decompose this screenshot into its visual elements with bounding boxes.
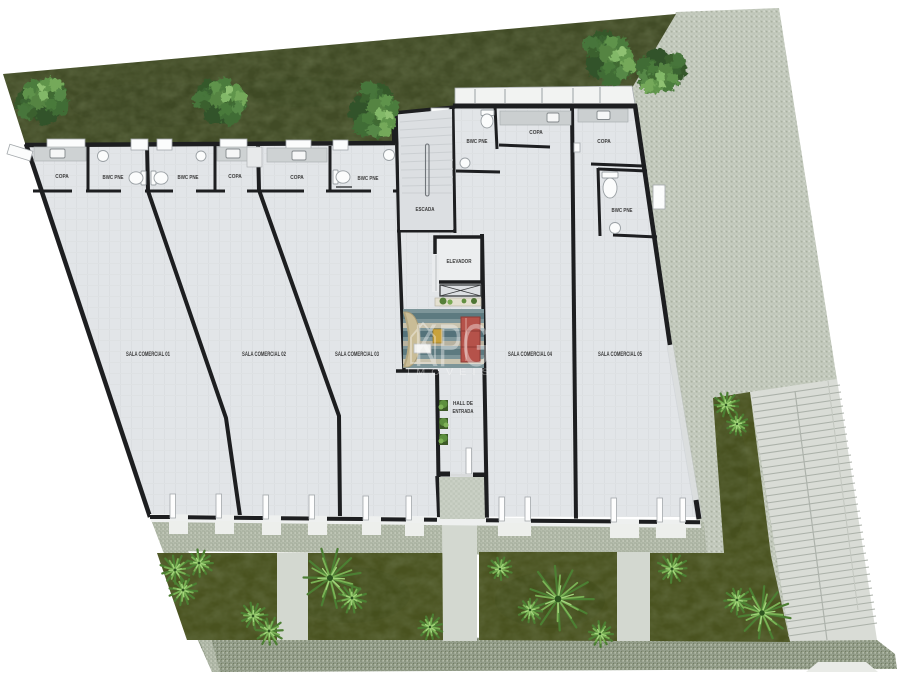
svg-text:SALA COMERCIAL 04: SALA COMERCIAL 04 [508, 351, 552, 358]
svg-text:COPA: COPA [597, 139, 611, 145]
svg-text:BWC PNE: BWC PNE [612, 208, 633, 214]
svg-text:SALA COMERCIAL 02: SALA COMERCIAL 02 [242, 351, 286, 358]
svg-text:BWC PNE: BWC PNE [358, 176, 379, 182]
svg-text:ELEVADOR: ELEVADOR [447, 259, 472, 265]
svg-text:BWC PNE: BWC PNE [467, 139, 488, 145]
svg-text:COPA: COPA [290, 175, 304, 181]
svg-text:BWC PNE: BWC PNE [103, 175, 124, 181]
svg-text:IMOVEIS: IMOVEIS [407, 367, 495, 377]
svg-text:SALA COMERCIAL 05: SALA COMERCIAL 05 [598, 351, 642, 358]
svg-text:COPA: COPA [529, 130, 543, 136]
svg-text:ESCADA: ESCADA [416, 207, 435, 213]
svg-text:SALA COMERCIAL 01: SALA COMERCIAL 01 [126, 351, 170, 358]
svg-text:COPA: COPA [228, 174, 242, 180]
svg-text:HALL DE: HALL DE [453, 401, 473, 407]
svg-text:ENTRADA: ENTRADA [453, 409, 474, 415]
svg-text:SALA COMERCIAL 03: SALA COMERCIAL 03 [335, 351, 379, 358]
svg-text:COPA: COPA [55, 174, 69, 180]
svg-text:BWC PNE: BWC PNE [178, 175, 199, 181]
